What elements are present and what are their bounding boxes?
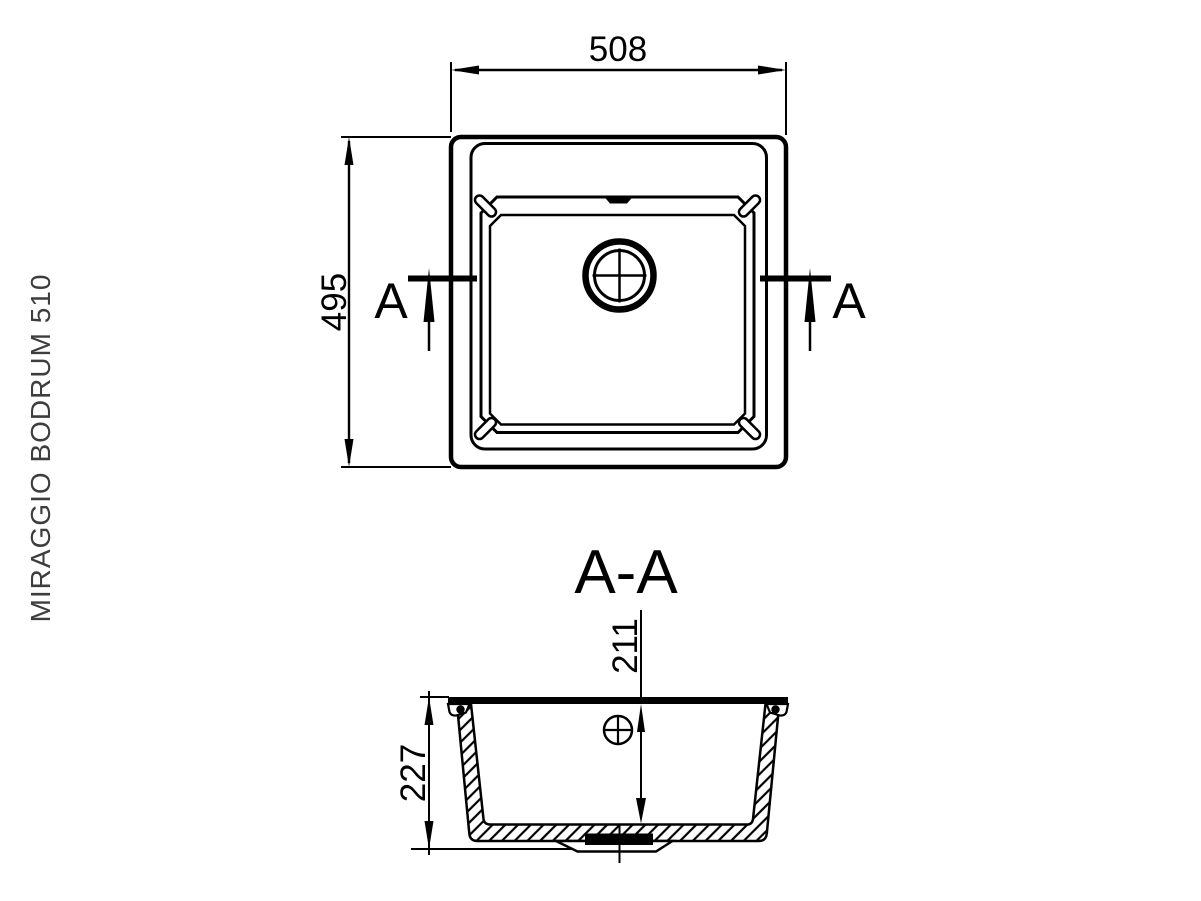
section-view: A-A 211 227 (394, 538, 788, 863)
section-cut-left: A (374, 268, 477, 351)
dim-211-label: 211 (606, 618, 645, 674)
arrowhead-up-icon (345, 137, 354, 165)
arrowhead-down-icon (425, 821, 434, 849)
dim-width: 508 (451, 30, 786, 135)
section-cut-letter-left: A (374, 273, 408, 329)
dim-height-label: 495 (315, 273, 354, 331)
arrowhead-down-icon (636, 798, 646, 824)
drain-crosshair (586, 242, 654, 310)
dim-width-label: 508 (589, 30, 647, 69)
hole-crosshair-icon (603, 715, 633, 745)
arrowhead-right-icon (758, 66, 786, 75)
gasket-dot-right (771, 705, 779, 713)
arrowhead-up-icon (425, 697, 434, 725)
section-cut-line-right (760, 276, 831, 282)
section-cut-right: A (760, 268, 866, 351)
arrowhead-up-icon (637, 704, 645, 732)
technical-drawing: MIRAGGIO BODRUM 510 508 495 (0, 0, 1201, 901)
arrowhead-left-icon (451, 66, 479, 75)
dim-227-label: 227 (394, 744, 433, 802)
section-cut-letter-right: A (832, 273, 866, 329)
bowl-corner-detail (737, 194, 762, 219)
section-title: A-A (574, 538, 678, 607)
drawing-canvas: MIRAGGIO BODRUM 510 508 495 (0, 0, 1201, 901)
bowl-bottom-edge (490, 215, 745, 425)
gasket-dot-left (456, 705, 464, 713)
rim-profile (448, 697, 788, 704)
section-cut-line-left (408, 276, 477, 282)
bowl-corner-detail (473, 194, 498, 219)
bowl-top-edge (481, 197, 754, 433)
overflow-notch (604, 197, 633, 204)
top-view: 508 495 (315, 30, 866, 467)
product-label: MIRAGGIO BODRUM 510 (25, 274, 56, 623)
arrowhead-down-icon (345, 439, 354, 467)
